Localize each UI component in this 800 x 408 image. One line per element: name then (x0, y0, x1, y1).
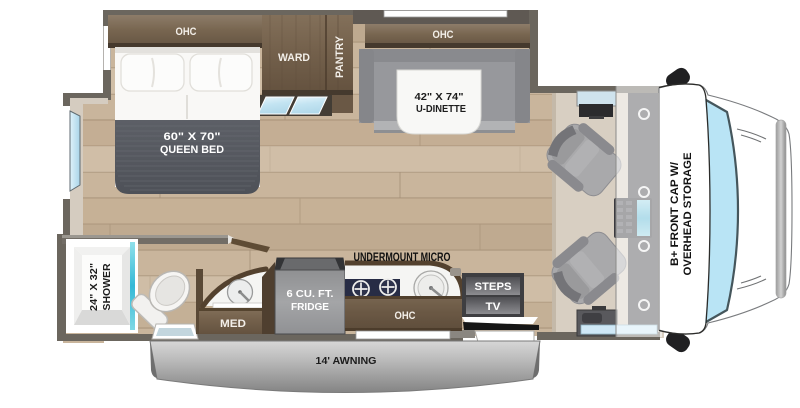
svg-text:TV: TV (486, 301, 502, 313)
svg-text:U-DINETTE: U-DINETTE (416, 103, 466, 115)
svg-text:UNDERMOUNT MICRO: UNDERMOUNT MICRO (354, 250, 451, 264)
svg-text:OHC: OHC (433, 29, 454, 41)
svg-text:OVERHEAD STORAGE: OVERHEAD STORAGE (682, 153, 694, 276)
svg-text:42" X 74": 42" X 74" (415, 91, 464, 103)
svg-text:60" X 70": 60" X 70" (164, 131, 221, 143)
svg-text:WARD: WARD (278, 52, 310, 64)
svg-text:B+ FRONT CAP W/: B+ FRONT CAP W/ (669, 162, 681, 266)
svg-text:OHC: OHC (176, 26, 197, 38)
svg-text:PANTRY: PANTRY (334, 35, 346, 78)
svg-text:FRIDGE: FRIDGE (291, 301, 329, 313)
svg-text:6 CU. FT.: 6 CU. FT. (287, 288, 334, 300)
svg-text:OHC: OHC (395, 310, 416, 322)
svg-text:24" X 32"SHOWER: 24" X 32"SHOWER (88, 263, 113, 311)
svg-text:MED: MED (220, 318, 246, 330)
svg-text:14' AWNING: 14' AWNING (316, 356, 377, 367)
svg-text:STEPS: STEPS (475, 281, 512, 293)
svg-text:QUEEN BED: QUEEN BED (160, 144, 224, 156)
